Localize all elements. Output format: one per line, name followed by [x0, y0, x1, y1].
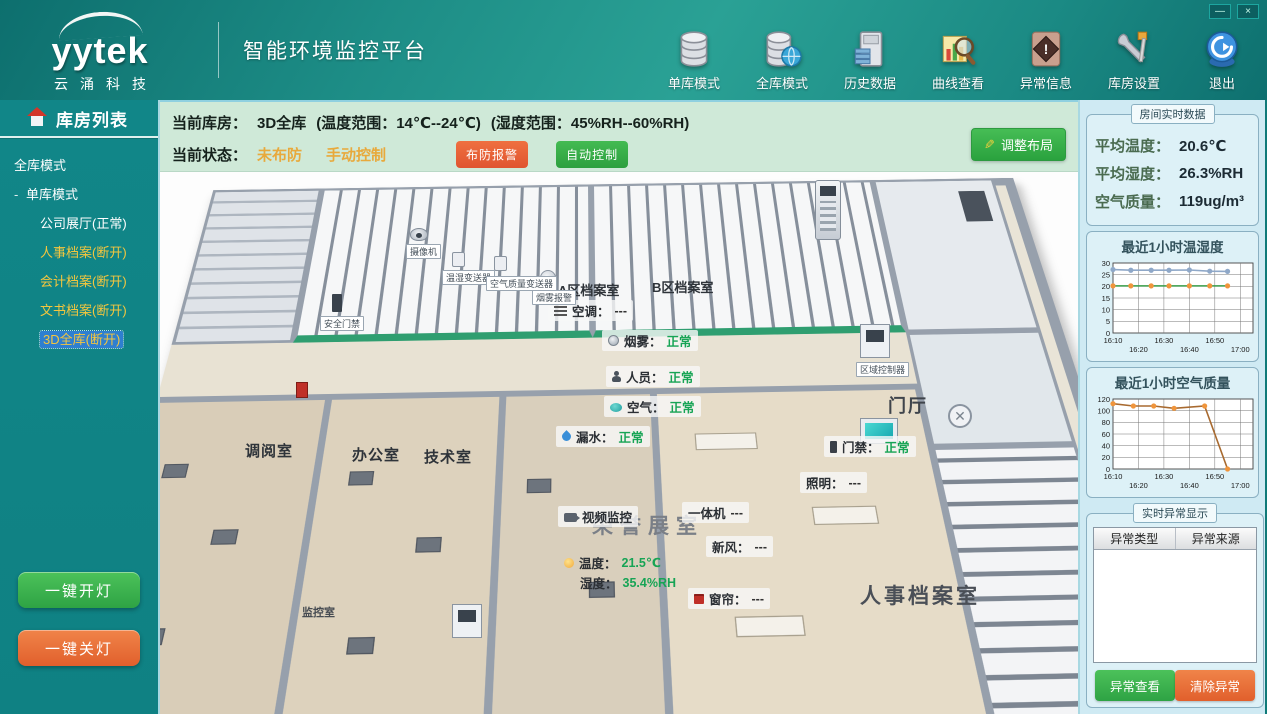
- ac-icon: [554, 306, 567, 316]
- toolbar-label: 库房设置: [1108, 73, 1160, 92]
- svg-text:25: 25: [1102, 270, 1110, 279]
- alarm-table-body[interactable]: [1094, 550, 1256, 662]
- svg-text:5: 5: [1106, 317, 1110, 326]
- tree-item-3d-full[interactable]: 3D全库(断开): [0, 324, 158, 353]
- chart-title-air-quality: 最近1小时空气质量: [1089, 372, 1256, 392]
- temp-humidity-chart: 05101520253016:1016:2016:3016:4016:5017:…: [1089, 257, 1259, 361]
- history-cabinet-icon: [849, 28, 891, 70]
- svg-text:16:40: 16:40: [1180, 345, 1199, 354]
- logo: yytek 云涌科技: [0, 6, 200, 94]
- avg-temp-value: 20.6℃: [1179, 137, 1226, 155]
- status-chip-cctv: 视频监控: [558, 506, 638, 527]
- header-divider: [218, 22, 219, 78]
- right-panel: 房间实时数据 平均温度： 20.6℃ 平均湿度： 26.3%RH 空气质量： 1…: [1078, 100, 1265, 714]
- toolbar-history-data[interactable]: 历史数据: [839, 28, 901, 92]
- callout-air-quality-sensor: 空气质量变送器: [486, 276, 557, 291]
- room-label-archive-b: B区档案室: [652, 277, 713, 296]
- toolbar-single-mode[interactable]: 单库模式: [663, 28, 725, 92]
- tree-item-hr-archive[interactable]: 人事档案(断开): [0, 237, 158, 266]
- exhaust-fan-icon: ✕: [948, 404, 972, 428]
- tree-item-single-mode[interactable]: -单库模式: [0, 179, 158, 208]
- warehouse-tree: 全库模式 -单库模式 公司展厅(正常) 人事档案(断开) 会计档案(断开) 文书…: [0, 150, 158, 353]
- status-chip-leak: 漏水：正常: [556, 426, 650, 447]
- svg-text:16:30: 16:30: [1155, 336, 1174, 345]
- door-access-icon: [830, 441, 837, 453]
- svg-text:!: !: [1044, 42, 1049, 57]
- current-state-label: 当前状态：: [172, 144, 247, 165]
- house-icon: [26, 109, 48, 127]
- status-row-2: 当前状态： 未布防 手动控制 布防报警 自动控制: [172, 138, 1068, 170]
- curtain-icon: [694, 594, 704, 604]
- humidity-range: (湿度范围：45%RH--60%RH): [491, 112, 689, 133]
- auto-control-button[interactable]: 自动控制: [556, 141, 628, 168]
- air-quality-chart: 02040608010012016:1016:2016:3016:4016:50…: [1089, 393, 1259, 497]
- alarm-table: 异常类型 异常来源: [1093, 527, 1257, 663]
- warning-icon: !: [1025, 28, 1067, 70]
- close-button[interactable]: ×: [1237, 4, 1259, 19]
- page-title: 智能环境监控平台: [243, 35, 427, 65]
- svg-text:16:10: 16:10: [1104, 336, 1123, 345]
- svg-text:20: 20: [1102, 453, 1110, 462]
- avg-temp-row: 平均温度： 20.6℃: [1095, 135, 1250, 156]
- app-window: yytek 云涌科技 智能环境监控平台 — × 单库模式 全库模式 历史数据: [0, 0, 1267, 714]
- window-controls: — ×: [1209, 4, 1259, 19]
- toolbar-curve-view[interactable]: 曲线查看: [927, 28, 989, 92]
- svg-text:40: 40: [1102, 441, 1110, 450]
- archive-room-b-shelving: [591, 180, 906, 338]
- chart-title-temp-humidity: 最近1小时温湿度: [1089, 236, 1256, 256]
- tree-item-all-mode[interactable]: 全库模式: [0, 150, 158, 179]
- air-quality-chart-panel: 最近1小时空气质量 02040608010012016:1016:2016:30…: [1086, 367, 1259, 498]
- toolbar-label: 历史数据: [844, 73, 896, 92]
- minimize-button[interactable]: —: [1209, 4, 1231, 19]
- temp-humidity-chart-panel: 最近1小时温湿度 05101520253016:1016:2016:3016:4…: [1086, 231, 1259, 362]
- callout-access-gate: 安全门禁: [320, 316, 364, 331]
- alarm-type-header: 异常类型: [1094, 528, 1176, 549]
- temp-humidity-sensor-icon: [452, 252, 465, 267]
- svg-text:16:20: 16:20: [1129, 345, 1148, 354]
- status-chip-temp: 温度：21.5℃: [558, 552, 667, 573]
- status-chip-door: 门禁：正常: [824, 436, 916, 457]
- room-label-reading: 调阅室: [245, 440, 293, 461]
- tools-icon: [1113, 28, 1155, 70]
- sidebar: 库房列表 全库模式 -单库模式 公司展厅(正常) 人事档案(断开) 会计档案(断…: [0, 100, 160, 714]
- room-label-office: 办公室: [352, 444, 400, 465]
- toolbar-label: 退出: [1209, 73, 1235, 92]
- exit-icon: [1201, 28, 1243, 70]
- svg-text:80: 80: [1102, 418, 1110, 427]
- view-alarm-button[interactable]: 异常查看: [1095, 670, 1175, 701]
- sidebar-buttons: 一键开灯 一键关灯: [0, 572, 158, 666]
- bulb-icon: [564, 558, 574, 568]
- status-row-1: 当前库房： 3D全库 (温度范围：14℃--24℃) (湿度范围：45%RH--…: [172, 106, 1068, 138]
- room-label-hr-archive: 人事档案室: [860, 580, 980, 610]
- tree-item-accounting-archive[interactable]: 会计档案(断开): [0, 266, 158, 295]
- toolbar: 单库模式 全库模式 历史数据 曲线查看 ! 异常信息 库房设置: [663, 28, 1253, 92]
- tree-item-document-archive[interactable]: 文书档案(断开): [0, 295, 158, 324]
- pencil-icon: ✎: [984, 137, 995, 153]
- toolbar-exit[interactable]: 退出: [1191, 28, 1253, 92]
- status-chip-person: 人员：正常: [606, 366, 700, 387]
- callout-smoke-alarm: 烟雾报警: [532, 290, 576, 305]
- entrance-reader-icon: [452, 604, 482, 638]
- avg-humidity-value: 26.3%RH: [1179, 165, 1243, 182]
- room-label-foyer: 门厅: [888, 392, 928, 418]
- dome-camera-icon: [410, 228, 428, 241]
- svg-text:17:00: 17:00: [1231, 481, 1250, 490]
- control-state-value: 手动控制: [326, 144, 386, 165]
- svg-text:100: 100: [1097, 406, 1110, 415]
- access-control-device-icon: [332, 294, 342, 312]
- alarm-source-header: 异常来源: [1176, 528, 1257, 549]
- toolbar-label: 全库模式: [756, 73, 808, 92]
- status-chip-air: 空气：正常: [604, 396, 701, 417]
- toolbar-alarm-info[interactable]: ! 异常信息: [1015, 28, 1077, 92]
- room-label-monitor-room: 监控室: [302, 604, 335, 620]
- water-drop-icon: [560, 430, 573, 443]
- realtime-panel-legend: 房间实时数据: [1131, 104, 1215, 124]
- svg-text:15: 15: [1102, 294, 1110, 303]
- chart-magnifier-icon: [937, 28, 979, 70]
- camera-icon: [564, 513, 577, 522]
- status-chip-freshair: 新风：---: [706, 536, 773, 557]
- air-quality-value: 119ug/m³: [1179, 193, 1244, 210]
- fire-alarm-box-icon: [296, 382, 308, 398]
- realtime-data-panel: 房间实时数据 平均温度： 20.6℃ 平均湿度： 26.3%RH 空气质量： 1…: [1086, 104, 1259, 226]
- lights-on-button[interactable]: 一键开灯: [18, 572, 140, 608]
- svg-text:16:10: 16:10: [1104, 472, 1123, 481]
- svg-text:16:30: 16:30: [1155, 472, 1174, 481]
- tree-item-company-hall[interactable]: 公司展厅(正常): [0, 208, 158, 237]
- status-chip-allinone: 一体机---: [682, 502, 749, 523]
- air-quality-sensor-icon: [494, 256, 507, 271]
- lights-off-button[interactable]: 一键关灯: [18, 630, 140, 666]
- svg-text:120: 120: [1097, 395, 1110, 404]
- toolbar-label: 异常信息: [1020, 73, 1072, 92]
- logo-subtext: 云涌科技: [42, 74, 158, 94]
- status-bar: 当前库房： 3D全库 (温度范围：14℃--24℃) (湿度范围：45%RH--…: [160, 100, 1078, 172]
- alarm-buttons: 异常查看 清除异常: [1093, 670, 1257, 701]
- smoke-icon: [608, 335, 619, 346]
- sidebar-title: 库房列表: [56, 106, 128, 131]
- arm-alarm-button[interactable]: 布防报警: [456, 141, 528, 168]
- header: yytek 云涌科技 智能环境监控平台 — × 单库模式 全库模式 历史数据: [0, 0, 1267, 100]
- svg-text:20: 20: [1102, 282, 1110, 291]
- person-icon: [612, 376, 621, 382]
- alarm-panel: 实时异常显示 异常类型 异常来源 异常查看 清除异常: [1086, 503, 1264, 708]
- svg-text:60: 60: [1102, 430, 1110, 439]
- callout-camera: 摄像机: [406, 244, 441, 259]
- clear-alarm-button[interactable]: 清除异常: [1175, 670, 1255, 701]
- main-area: 当前库房： 3D全库 (温度范围：14℃--24℃) (湿度范围：45%RH--…: [160, 100, 1078, 714]
- database-globe-icon: [761, 28, 803, 70]
- air-icon: [610, 403, 622, 412]
- status-chip-smoke: 烟雾：正常: [602, 330, 698, 351]
- current-warehouse-value: 3D全库: [257, 112, 306, 133]
- toolbar-label: 曲线查看: [932, 73, 984, 92]
- svg-text:10: 10: [1102, 305, 1110, 314]
- database-icon: [673, 28, 715, 70]
- svg-text:17:00: 17:00: [1231, 345, 1250, 354]
- status-chip-humidity: 湿度：35.4%RH: [558, 572, 682, 593]
- avg-humidity-row: 平均湿度： 26.3%RH: [1095, 163, 1250, 184]
- arm-state-value: 未布防: [257, 144, 302, 165]
- toolbar-warehouse-settings[interactable]: 库房设置: [1103, 28, 1165, 92]
- status-chip-lighting: 照明：---: [800, 472, 867, 493]
- svg-text:16:50: 16:50: [1205, 472, 1224, 481]
- svg-text:30: 30: [1102, 259, 1110, 268]
- callout-zone-controller: 区域控制器: [856, 362, 909, 377]
- floorplan-3d-view[interactable]: ✕ A区档案室 B区档案室 调阅室 办公室 技术室 荣誉展室 门厅 人事档案室 …: [160, 172, 1078, 714]
- alarm-table-header: 异常类型 异常来源: [1094, 528, 1256, 550]
- svg-text:16:20: 16:20: [1129, 481, 1148, 490]
- toolbar-label: 单库模式: [668, 73, 720, 92]
- current-warehouse-label: 当前库房：: [172, 112, 247, 133]
- precision-ac-cabinet-icon: [815, 180, 841, 240]
- status-chip-curtain: 窗帘：---: [688, 588, 770, 609]
- temp-range: (温度范围：14℃--24℃): [316, 112, 481, 133]
- air-quality-row: 空气质量： 119ug/m³: [1095, 191, 1250, 212]
- alarm-panel-legend: 实时异常显示: [1133, 503, 1217, 523]
- toolbar-all-mode[interactable]: 全库模式: [751, 28, 813, 92]
- collapse-icon[interactable]: -: [14, 187, 26, 202]
- sidebar-header: 库房列表: [0, 100, 158, 138]
- svg-text:16:50: 16:50: [1205, 336, 1224, 345]
- svg-text:16:40: 16:40: [1180, 481, 1199, 490]
- adjust-layout-button[interactable]: ✎ 调整布局: [971, 128, 1066, 161]
- room-label-tech: 技术室: [424, 446, 472, 467]
- zone-controller-icon: [860, 324, 890, 358]
